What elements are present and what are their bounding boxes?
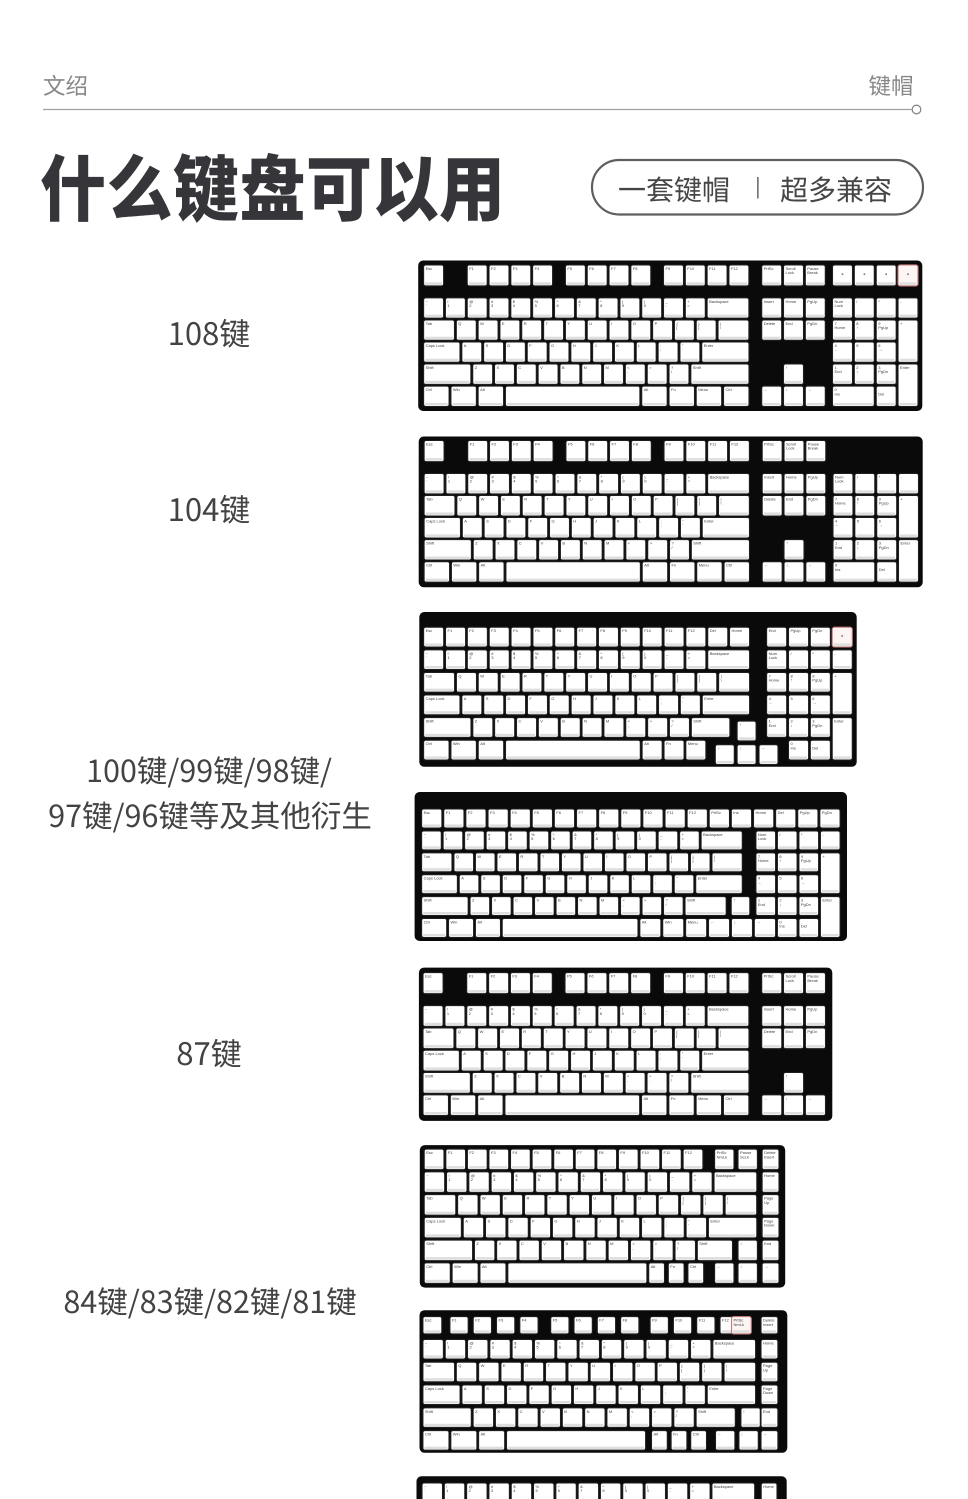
svg-text:PgDn: PgDn xyxy=(807,321,817,326)
svg-text:F11: F11 xyxy=(710,442,717,447)
svg-text:]: ] xyxy=(692,858,693,863)
svg-text:Q: Q xyxy=(456,854,459,859)
svg-text:Insert: Insert xyxy=(764,299,775,304)
svg-text:M: M xyxy=(609,1409,612,1414)
svg-text:PgDn: PgDn xyxy=(812,723,822,728)
svg-text:C: C xyxy=(519,541,522,546)
svg-text:Shift: Shift xyxy=(698,1409,707,1414)
svg-text:W: W xyxy=(482,1196,486,1201)
svg-text:PgDn: PgDn xyxy=(808,497,818,502)
svg-text:PgDn: PgDn xyxy=(822,810,832,815)
svg-text:D: D xyxy=(507,1051,510,1056)
svg-text:→: → xyxy=(807,1096,811,1101)
svg-text:→: → xyxy=(764,1264,768,1269)
svg-text:X: X xyxy=(494,898,497,903)
svg-text:D: D xyxy=(504,876,507,881)
svg-text:X: X xyxy=(496,1074,499,1079)
svg-text:Win: Win xyxy=(452,1096,459,1101)
svg-text:Lock: Lock xyxy=(758,836,766,841)
svg-text:PgDn: PgDn xyxy=(812,628,822,633)
svg-text:Lock: Lock xyxy=(835,303,843,308)
svg-text:S: S xyxy=(486,696,489,701)
svg-text:F10: F10 xyxy=(687,266,695,271)
svg-text:N: N xyxy=(587,1409,590,1414)
svg-text:B: B xyxy=(562,541,565,546)
svg-text:A: A xyxy=(464,343,467,348)
svg-text:F1: F1 xyxy=(469,266,474,271)
svg-text:Delete: Delete xyxy=(764,321,776,326)
svg-text:K: K xyxy=(617,519,620,524)
svg-text:Del: Del xyxy=(801,924,807,929)
svg-text:F12: F12 xyxy=(731,974,739,979)
svg-text:,: , xyxy=(623,902,624,907)
svg-text:N: N xyxy=(583,1074,586,1079)
svg-text:F6: F6 xyxy=(557,628,562,633)
svg-text:→: → xyxy=(878,347,882,352)
svg-text:Insert: Insert xyxy=(763,1322,774,1327)
svg-text:ScLk: ScLk xyxy=(740,1154,749,1159)
svg-text:F7: F7 xyxy=(579,628,584,633)
svg-text:Y: Y xyxy=(567,1029,570,1034)
svg-text:Home: Home xyxy=(756,810,767,815)
svg-text:Tab: Tab xyxy=(426,1196,433,1201)
svg-text:F9: F9 xyxy=(666,442,671,447)
svg-text:A: A xyxy=(464,519,467,524)
svg-text:R: R xyxy=(523,1029,526,1034)
svg-text:F1: F1 xyxy=(448,628,453,633)
svg-text:Caps Lock: Caps Lock xyxy=(426,696,445,701)
svg-text:H: H xyxy=(573,1051,576,1056)
svg-text:D: D xyxy=(508,519,511,524)
svg-text:F3: F3 xyxy=(490,810,495,815)
svg-text:Y: Y xyxy=(567,321,570,326)
svg-text:Tab: Tab xyxy=(426,497,433,502)
svg-text:F7: F7 xyxy=(612,442,617,447)
svg-text:O: O xyxy=(633,1029,636,1034)
svg-text:F9: F9 xyxy=(623,810,628,815)
svg-text:A: A xyxy=(464,696,467,701)
svg-text:F8: F8 xyxy=(633,974,638,979)
svg-text:Win: Win xyxy=(665,920,672,925)
svg-text:End: End xyxy=(769,628,776,633)
svg-text:B: B xyxy=(566,1241,569,1246)
svg-text:F4: F4 xyxy=(522,1318,527,1323)
svg-text:Insert: Insert xyxy=(764,474,775,479)
svg-text:U: U xyxy=(589,1029,592,1034)
svg-text:F12: F12 xyxy=(722,1318,730,1323)
svg-text:Tab: Tab xyxy=(425,1363,432,1368)
svg-text:Ins: Ins xyxy=(835,567,840,572)
svg-text:F9: F9 xyxy=(622,628,627,633)
svg-text:F4: F4 xyxy=(534,974,539,979)
svg-text:Delete: Delete xyxy=(764,497,776,502)
svg-text:.: . xyxy=(654,1413,655,1418)
svg-text:Esc: Esc xyxy=(426,628,433,633)
svg-text:PgDn: PgDn xyxy=(878,369,888,374)
svg-text:K: K xyxy=(620,1386,623,1391)
svg-text:Caps Lock: Caps Lock xyxy=(426,519,445,524)
svg-text:Home: Home xyxy=(732,628,743,633)
svg-text:.: . xyxy=(649,1078,650,1083)
svg-text:Shift: Shift xyxy=(425,1409,434,1414)
svg-text:Caps Lock: Caps Lock xyxy=(426,1218,445,1223)
svg-text:I: I xyxy=(606,854,607,859)
svg-text:Q: Q xyxy=(460,1196,463,1201)
svg-text:C: C xyxy=(521,1241,524,1246)
svg-text:U: U xyxy=(589,321,592,326)
svg-text:Home: Home xyxy=(835,325,846,330)
svg-text:S: S xyxy=(483,876,486,881)
svg-text:H: H xyxy=(569,876,572,881)
svg-text:F11: F11 xyxy=(664,1150,671,1155)
svg-text:F8: F8 xyxy=(600,628,605,633)
svg-text:Win: Win xyxy=(453,387,460,392)
svg-text:Fn: Fn xyxy=(673,1432,678,1437)
svg-text:F2: F2 xyxy=(475,1318,480,1323)
svg-text:F1: F1 xyxy=(469,974,474,979)
svg-text:↑: ↑ xyxy=(779,858,781,863)
svg-text:↑: ↑ xyxy=(791,678,793,683)
svg-text:Caps Lock: Caps Lock xyxy=(424,876,443,881)
svg-text:F4: F4 xyxy=(535,442,540,447)
svg-text:S: S xyxy=(486,343,489,348)
svg-text:F11: F11 xyxy=(699,1318,706,1323)
svg-text:F12: F12 xyxy=(731,266,739,271)
svg-text:H: H xyxy=(573,519,576,524)
svg-text:↑: ↑ xyxy=(786,365,788,370)
svg-text:F11: F11 xyxy=(709,974,716,979)
svg-text:R: R xyxy=(525,1363,528,1368)
svg-text:F2: F2 xyxy=(468,810,473,815)
svg-text:W: W xyxy=(480,321,484,326)
svg-text:Backspace: Backspace xyxy=(709,299,729,304)
svg-text:P: P xyxy=(655,321,658,326)
svg-text:Ins: Ins xyxy=(835,391,840,396)
svg-text:W: W xyxy=(477,854,481,859)
svg-text:↓: ↓ xyxy=(791,723,793,728)
svg-text:PrtSc: PrtSc xyxy=(764,442,774,447)
svg-text:Win: Win xyxy=(451,920,458,925)
svg-text:Q: Q xyxy=(458,1363,461,1368)
svg-text:Shift: Shift xyxy=(426,1241,435,1246)
svg-text:W: W xyxy=(480,673,484,678)
svg-text:H: H xyxy=(573,696,576,701)
svg-text:R: R xyxy=(524,673,527,678)
svg-text:Lock: Lock xyxy=(835,479,843,484)
svg-text:H: H xyxy=(577,1218,580,1223)
svg-text:F5: F5 xyxy=(534,810,539,815)
svg-text:Lock: Lock xyxy=(769,655,777,660)
svg-text:J: J xyxy=(595,343,597,348)
svg-text:F9: F9 xyxy=(652,1318,657,1323)
svg-text:X: X xyxy=(497,1409,500,1414)
svg-text:.: . xyxy=(650,545,651,550)
svg-text:F7: F7 xyxy=(577,1150,582,1155)
svg-text:;: ; xyxy=(660,347,661,352)
svg-text:Backspace: Backspace xyxy=(716,1173,736,1178)
svg-text:P: P xyxy=(659,1363,662,1368)
svg-text:J: J xyxy=(594,1051,596,1056)
svg-text:End: End xyxy=(786,321,793,326)
svg-text:←: ← xyxy=(835,347,839,352)
svg-text:↑: ↑ xyxy=(739,722,741,727)
svg-text:PgUp: PgUp xyxy=(812,678,823,683)
svg-text:H: H xyxy=(573,343,576,348)
svg-text:Enter: Enter xyxy=(710,1218,720,1223)
svg-text:↓: ↓ xyxy=(856,369,858,374)
svg-text:Home: Home xyxy=(835,501,846,506)
svg-text:Fn: Fn xyxy=(671,387,676,392)
svg-text:V: V xyxy=(542,1409,545,1414)
svg-text:U: U xyxy=(592,1363,595,1368)
svg-text:Ctrl: Ctrl xyxy=(425,1432,431,1437)
svg-text:Q: Q xyxy=(458,673,461,678)
svg-text:PgDn: PgDn xyxy=(807,1029,817,1034)
svg-text:S: S xyxy=(485,1051,488,1056)
svg-text:.: . xyxy=(649,369,650,374)
svg-text:E: E xyxy=(502,1029,505,1034)
svg-text:F3: F3 xyxy=(499,1318,504,1323)
svg-text:Enter: Enter xyxy=(900,365,910,370)
svg-text:F3: F3 xyxy=(513,266,518,271)
svg-text:F5: F5 xyxy=(535,628,540,633)
svg-text:↓: ↓ xyxy=(741,1432,743,1437)
svg-text:M: M xyxy=(601,898,604,903)
svg-text:S: S xyxy=(486,519,489,524)
svg-text:R: R xyxy=(527,1196,530,1201)
svg-text:;: ; xyxy=(666,1223,667,1228)
svg-text:F11: F11 xyxy=(667,810,674,815)
svg-text:V: V xyxy=(541,541,544,546)
svg-text:G: G xyxy=(551,1051,554,1056)
svg-text:D: D xyxy=(510,1218,513,1223)
svg-text:M: M xyxy=(610,1241,613,1246)
svg-text:C: C xyxy=(518,1074,521,1079)
svg-text:→: → xyxy=(801,880,805,885)
svg-text:Home: Home xyxy=(763,1484,774,1489)
svg-text:R: R xyxy=(520,854,523,859)
svg-text:V: V xyxy=(543,1241,546,1246)
svg-text:K: K xyxy=(621,1218,624,1223)
svg-text:J: J xyxy=(590,876,592,881)
svg-text:D: D xyxy=(508,696,511,701)
svg-text:Esc: Esc xyxy=(425,1318,432,1323)
svg-text:F6: F6 xyxy=(590,442,595,447)
svg-text:Caps Lock: Caps Lock xyxy=(425,1386,444,1391)
svg-text:PgDn: PgDn xyxy=(879,545,889,550)
svg-text:End: End xyxy=(835,369,842,374)
svg-text:↑: ↑ xyxy=(743,1409,745,1414)
svg-text:→: → xyxy=(756,920,760,925)
svg-text:↓: ↓ xyxy=(740,1264,742,1269)
svg-text:Fn: Fn xyxy=(666,741,671,746)
svg-text:G: G xyxy=(552,519,555,524)
svg-text:G: G xyxy=(551,343,554,348)
svg-text:K: K xyxy=(616,343,619,348)
svg-text:Insert: Insert xyxy=(764,1154,775,1159)
svg-text:P: P xyxy=(654,1029,657,1034)
svg-text:V: V xyxy=(537,898,540,903)
svg-text:Ctrl: Ctrl xyxy=(425,1096,431,1101)
svg-text:O: O xyxy=(628,854,631,859)
svg-text:Ctrl: Ctrl xyxy=(725,1096,731,1101)
svg-text:F2: F2 xyxy=(469,628,474,633)
svg-text:Shift: Shift xyxy=(693,541,702,546)
svg-text:Up: Up xyxy=(763,1367,769,1372)
svg-text:←: ← xyxy=(764,1096,768,1101)
svg-text:O: O xyxy=(633,497,636,502)
svg-text:F2: F2 xyxy=(491,974,496,979)
svg-text:↓: ↓ xyxy=(733,920,735,925)
svg-text:Backspace: Backspace xyxy=(709,1007,729,1012)
svg-text:↓: ↓ xyxy=(786,387,788,392)
svg-text:Ctrl: Ctrl xyxy=(693,1432,699,1437)
svg-text:U: U xyxy=(585,854,588,859)
svg-text:Menu: Menu xyxy=(698,387,708,392)
svg-text:F4: F4 xyxy=(512,810,517,815)
svg-text:PgUp: PgUp xyxy=(808,474,819,479)
svg-text:P: P xyxy=(660,1196,663,1201)
svg-text:Menu: Menu xyxy=(698,1096,708,1101)
svg-text:P: P xyxy=(649,854,652,859)
svg-text:F8: F8 xyxy=(633,442,638,447)
svg-text:F7: F7 xyxy=(611,974,616,979)
svg-text:J: J xyxy=(598,1386,600,1391)
svg-text:Fn: Fn xyxy=(672,563,677,568)
svg-text:↓: ↓ xyxy=(779,902,781,907)
svg-text:C: C xyxy=(515,898,518,903)
svg-text:↑: ↑ xyxy=(786,1074,788,1079)
svg-text:,: , xyxy=(627,369,628,374)
svg-text:Menu: Menu xyxy=(699,563,709,568)
svg-text:PgDn: PgDn xyxy=(801,902,811,907)
svg-text:→: → xyxy=(812,700,816,705)
svg-text:F12: F12 xyxy=(731,442,739,447)
svg-text:X: X xyxy=(497,541,500,546)
svg-text:Y: Y xyxy=(570,1363,573,1368)
svg-text:→: → xyxy=(763,1432,767,1437)
svg-text:F5: F5 xyxy=(567,974,572,979)
svg-text:J: J xyxy=(595,696,597,701)
svg-text:Lock: Lock xyxy=(786,978,794,983)
svg-text:PgUp: PgUp xyxy=(807,1007,818,1012)
svg-text:Enter: Enter xyxy=(901,541,911,546)
svg-text:F4: F4 xyxy=(535,266,540,271)
svg-text:I: I xyxy=(611,321,612,326)
svg-text:←: ← xyxy=(764,387,768,392)
svg-text:F3: F3 xyxy=(491,1150,496,1155)
svg-text:Esc: Esc xyxy=(424,810,431,815)
svg-text:F3: F3 xyxy=(491,628,496,633)
svg-text:←: ← xyxy=(718,1432,722,1437)
svg-text:B: B xyxy=(562,719,565,724)
svg-text:End: End xyxy=(769,723,776,728)
svg-text:F2: F2 xyxy=(492,442,497,447)
svg-text:U: U xyxy=(593,1196,596,1201)
svg-text:Shift: Shift xyxy=(693,365,702,370)
svg-text:Backspace: Backspace xyxy=(714,1484,734,1489)
svg-text:Del: Del xyxy=(879,567,885,572)
svg-text:Break: Break xyxy=(808,446,818,451)
svg-text:Fn: Fn xyxy=(670,1264,675,1269)
svg-text:F3: F3 xyxy=(513,442,518,447)
svg-text:Win: Win xyxy=(454,1264,461,1269)
svg-text:End: End xyxy=(786,497,793,502)
svg-text:;: ; xyxy=(661,700,662,705)
svg-text:]: ] xyxy=(705,1200,706,1205)
svg-text:R: R xyxy=(524,497,527,502)
svg-text:S: S xyxy=(486,1386,489,1391)
svg-text:;: ; xyxy=(655,880,656,885)
svg-text:Del: Del xyxy=(878,391,884,396)
svg-text:E: E xyxy=(502,321,505,326)
svg-text:Enter: Enter xyxy=(704,343,714,348)
svg-text:P: P xyxy=(655,673,658,678)
svg-text:F10: F10 xyxy=(645,810,653,815)
svg-text:F1: F1 xyxy=(470,442,475,447)
svg-text:F12: F12 xyxy=(689,810,697,815)
svg-text:;: ; xyxy=(661,523,662,528)
svg-text:PgUp: PgUp xyxy=(879,501,890,506)
svg-text:M: M xyxy=(605,1074,608,1079)
svg-text:P: P xyxy=(655,497,658,502)
svg-text:X: X xyxy=(499,1241,502,1246)
svg-text:G: G xyxy=(551,696,554,701)
svg-text:Del: Del xyxy=(710,628,716,633)
svg-text:F4: F4 xyxy=(513,628,518,633)
svg-text:Menu: Menu xyxy=(688,920,698,925)
svg-text:F10: F10 xyxy=(642,1150,650,1155)
svg-text:.: . xyxy=(650,723,651,728)
svg-text:PrtSc: PrtSc xyxy=(764,266,774,271)
svg-text:Home: Home xyxy=(786,299,797,304)
svg-text:I: I xyxy=(611,673,612,678)
svg-text:End: End xyxy=(786,1029,793,1034)
svg-text:Home: Home xyxy=(769,678,780,683)
svg-text:,: , xyxy=(631,1413,632,1418)
svg-text:F9: F9 xyxy=(620,1150,625,1155)
svg-text:I: I xyxy=(615,1363,616,1368)
svg-text:Ins: Ins xyxy=(791,745,796,750)
svg-text:;: ; xyxy=(665,1390,666,1395)
svg-text:O: O xyxy=(633,321,636,326)
svg-text:End: End xyxy=(763,1409,770,1414)
svg-text:←: ← xyxy=(758,880,762,885)
svg-text:←: ← xyxy=(711,920,715,925)
svg-text:F10: F10 xyxy=(675,1318,683,1323)
svg-text:B: B xyxy=(558,898,561,903)
svg-text:F5: F5 xyxy=(568,442,573,447)
svg-text:F12: F12 xyxy=(685,1150,693,1155)
svg-text:F3: F3 xyxy=(512,974,517,979)
svg-text:Win: Win xyxy=(453,741,460,746)
svg-text:Shift: Shift xyxy=(426,541,435,546)
svg-text:Lock: Lock xyxy=(786,446,794,451)
svg-text:Down: Down xyxy=(763,1390,773,1395)
svg-text:Del: Del xyxy=(778,810,784,815)
svg-text:↑: ↑ xyxy=(856,325,858,330)
svg-text:←: ← xyxy=(717,746,721,751)
svg-text:F4: F4 xyxy=(513,1150,518,1155)
svg-text:Enter: Enter xyxy=(834,719,844,724)
svg-text:F9: F9 xyxy=(665,974,670,979)
svg-text:Enter: Enter xyxy=(704,696,714,701)
svg-text:Insert: Insert xyxy=(764,1007,775,1012)
svg-text:Shift: Shift xyxy=(693,1074,702,1079)
svg-text:Esc: Esc xyxy=(426,266,433,271)
svg-text:PgUp: PgUp xyxy=(800,810,811,815)
svg-text:Lock: Lock xyxy=(786,270,794,275)
